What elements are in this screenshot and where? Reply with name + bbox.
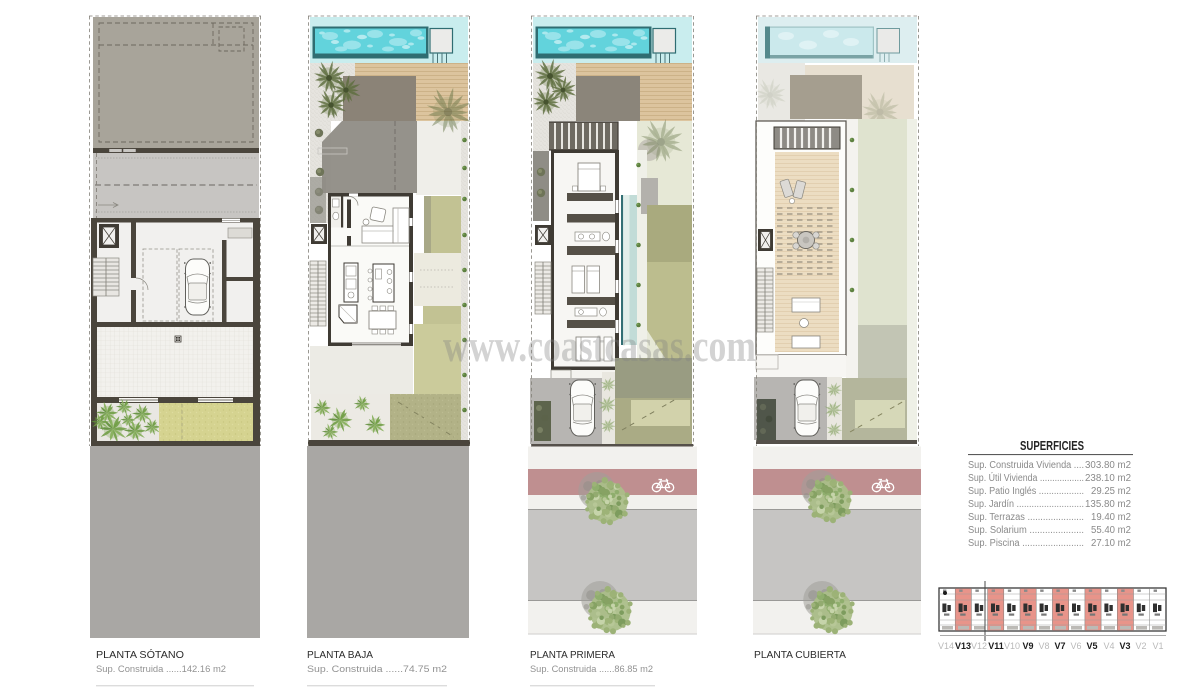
- svg-text:Sup. Construida ......142.16 m: Sup. Construida ......142.16 m2: [96, 664, 226, 675]
- svg-text:V8: V8: [1038, 641, 1049, 651]
- svg-text:Sup. Construida ......74.75 m2: Sup. Construida ......74.75 m2: [307, 664, 447, 675]
- svg-text:SUPERFICIES: SUPERFICIES: [1020, 439, 1084, 453]
- svg-text:Sup. Terrazas ...............: Sup. Terrazas ......................: [968, 512, 1084, 523]
- svg-text:55.40 m2: 55.40 m2: [1091, 525, 1131, 536]
- svg-text:V11: V11: [988, 641, 1004, 651]
- svg-text:29.25 m2: 29.25 m2: [1091, 486, 1131, 497]
- svg-text:Sup. Construida ......86.85 m2: Sup. Construida ......86.85 m2: [530, 664, 653, 675]
- svg-text:Sup. Piscina ................: Sup. Piscina ........................: [968, 538, 1084, 549]
- svg-text:PLANTA CUBIERTA: PLANTA CUBIERTA: [754, 649, 846, 661]
- svg-text:19.40 m2: 19.40 m2: [1091, 512, 1131, 523]
- svg-text:PLANTA BAJA: PLANTA BAJA: [307, 649, 373, 661]
- svg-text:V2: V2: [1135, 641, 1146, 651]
- svg-text:Sup. Construida Vivienda ....: Sup. Construida Vivienda ....: [968, 460, 1084, 471]
- svg-text:Sup. Solarium ...............: Sup. Solarium .....................: [968, 525, 1084, 536]
- svg-text:27.10 m2: 27.10 m2: [1091, 538, 1131, 549]
- svg-text:238.10 m2: 238.10 m2: [1085, 473, 1131, 484]
- svg-text:V5: V5: [1086, 641, 1097, 651]
- svg-text:V12: V12: [971, 641, 987, 651]
- svg-text:V13: V13: [955, 641, 971, 651]
- svg-text:V9: V9: [1022, 641, 1033, 651]
- svg-text:303.80 m2: 303.80 m2: [1085, 460, 1131, 471]
- svg-text:PLANTA SÓTANO: PLANTA SÓTANO: [96, 648, 184, 661]
- svg-text:135.80 m2: 135.80 m2: [1085, 499, 1131, 510]
- svg-text:PLANTA PRIMERA: PLANTA PRIMERA: [530, 649, 615, 661]
- svg-text:V6: V6: [1070, 641, 1081, 651]
- svg-text:V7: V7: [1054, 641, 1065, 651]
- svg-text:Sup. Jardín ..................: Sup. Jardín ...........................: [968, 499, 1084, 510]
- svg-text:Sup. Útil Vivienda ...........: Sup. Útil Vivienda ..................: [968, 471, 1084, 484]
- svg-text:V1: V1: [1152, 641, 1163, 651]
- svg-text:Sup. Patio Inglés ............: Sup. Patio Inglés ..................: [968, 486, 1084, 497]
- svg-text:V10: V10: [1004, 641, 1020, 651]
- svg-text:V4: V4: [1103, 641, 1114, 651]
- svg-text:www.coastcasas.com: www.coastcasas.com: [443, 320, 756, 371]
- svg-text:V14: V14: [938, 641, 954, 651]
- svg-text:V3: V3: [1119, 641, 1130, 651]
